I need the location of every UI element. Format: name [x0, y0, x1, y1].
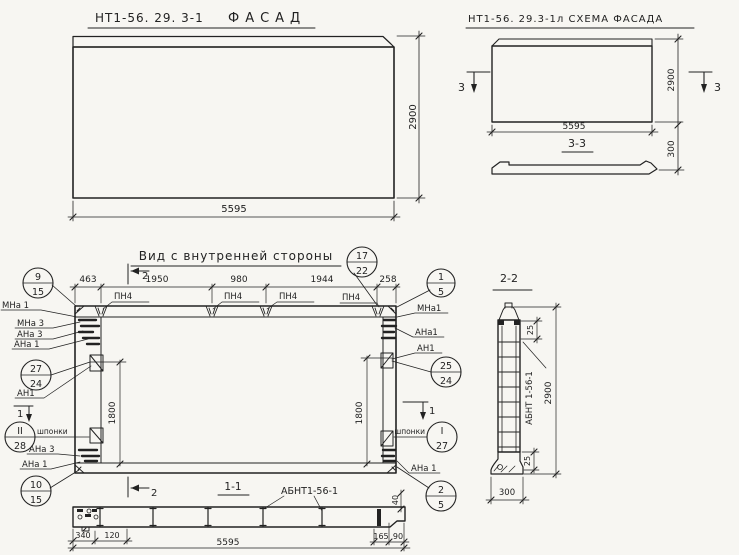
inner-corner-chamfers — [75, 306, 396, 473]
dim-2900-section: 2900 — [544, 381, 554, 404]
schema-section-profile — [492, 161, 657, 174]
inner-title: Вид с внутренней стороны — [139, 249, 333, 263]
label-ana1-left-bottom: АНа 1 — [22, 460, 48, 470]
drawing-sheet: НТ1-56. 29. 3-1 ФАСАД 5595 2900 НТ1-56. … — [0, 0, 739, 555]
schema-marker-left: 3 — [458, 81, 465, 94]
schema-top-flange — [492, 39, 652, 46]
section-marker-1-lines — [14, 402, 428, 415]
anchor-plates-left-bottom — [79, 450, 99, 461]
facade-dim-width: 5595 — [221, 204, 246, 215]
marker-2-top: 2 — [142, 271, 148, 282]
schema-view: НТ1-56. 29.3-1л СХЕМА ФАСАДА 5595 2900 3… — [458, 14, 721, 175]
bar-outline — [73, 507, 405, 527]
facade-dim-ticks — [70, 33, 422, 220]
callout-top: 27 — [30, 364, 42, 375]
anchor-plates-right-top — [382, 320, 396, 338]
label-an1-left: АН1 — [17, 389, 35, 399]
facade-code: НТ1-56. 29. 3-1 — [95, 11, 204, 25]
section-1-1: 1-1 АБНТ1-56-1 340 120 165 90 5595 40 — [68, 481, 410, 551]
rebar-dot-3 — [94, 515, 98, 519]
callout-top: 9 — [35, 272, 41, 283]
label-an1-right: АН1 — [417, 344, 435, 354]
label-ana3-left: АНа 3 — [17, 330, 43, 340]
pn4-label-3: ПН4 — [279, 292, 297, 302]
dim-90: 90 — [393, 532, 403, 541]
dim-1800-left: 1800 — [108, 401, 118, 424]
section-2-2: 2-2 25 25 АБНТ 1-56-1 2900 300 — [486, 272, 561, 504]
callout-10-15: 10 15 — [21, 470, 79, 506]
callout-27-24: 27 24 — [21, 360, 90, 390]
bar-ibeam-marks — [97, 508, 325, 526]
schema-dim-lines — [487, 34, 684, 175]
inner-panel-edges — [75, 317, 396, 463]
callout-leader — [23, 283, 76, 306]
dim-463: 463 — [79, 275, 96, 285]
pn4-label-2: ПН4 — [224, 292, 242, 302]
label-ana1-left: АНа 1 — [14, 340, 40, 350]
schema-section-title: 3-3 — [568, 137, 586, 150]
rebar-dot-2 — [87, 509, 91, 513]
callout-top: II — [17, 426, 23, 437]
callout-bottom: 28 — [14, 441, 26, 452]
bar-end-anchor-fill — [377, 509, 381, 526]
label-ana3-left-bottom: АНа 3 — [29, 445, 55, 455]
top-notches — [95, 306, 384, 316]
callout-top: I — [441, 426, 444, 437]
label-mna3-left: МНа 3 — [17, 319, 44, 329]
dim-5595-bottom: 5595 — [217, 538, 240, 548]
facade-title: ФАСАД — [228, 11, 306, 26]
schema-dim-height: 2900 — [667, 68, 677, 91]
part-label-abnt-vertical: АБНТ 1-56-1 — [525, 371, 535, 425]
callout-top: 25 — [440, 361, 452, 372]
dim-120: 120 — [104, 531, 119, 540]
facade-view: НТ1-56. 29. 3-1 ФАСАД 5595 2900 — [68, 11, 425, 221]
column-foot-hatch — [494, 465, 515, 472]
shponki-left-label: шпонки — [37, 427, 68, 436]
marker-1-left: 1 — [17, 409, 23, 420]
schema-dim-thickness: 300 — [667, 140, 677, 157]
schema-dim-width: 5595 — [563, 122, 586, 132]
schema-marker-right: 3 — [714, 81, 721, 94]
callout-top: 2 — [438, 485, 444, 496]
section-marker-1-arrows — [26, 412, 426, 422]
dim-980: 980 — [230, 275, 247, 285]
inner-panel-outline — [75, 306, 396, 473]
dim-1800-ticks — [117, 355, 370, 467]
label-mna1-right: МНа1 — [417, 304, 441, 314]
callout-top: 1 — [438, 272, 444, 283]
anchor-plates-right-bottom — [382, 450, 395, 461]
column-anchor-squares — [498, 320, 520, 325]
callout-bottom: 24 — [440, 376, 452, 387]
label-ana1-right-bottom: АНа 1 — [411, 464, 437, 474]
dim-1800-right: 1800 — [355, 401, 365, 424]
dim-340: 340 — [75, 531, 90, 540]
dim-165: 165 — [373, 532, 388, 541]
part-label-abnt: АБНТ1-56-1 — [281, 486, 338, 497]
column-cap — [499, 303, 519, 320]
part-label-leaders — [265, 496, 322, 511]
dim-40: 40 — [391, 495, 400, 505]
label-ana1-right: АНа1 — [415, 328, 438, 338]
facade-dim-height: 2900 — [408, 104, 419, 129]
dim-1944: 1944 — [311, 275, 334, 285]
callout-9-15: 9 15 — [23, 268, 76, 306]
drawing-canvas: НТ1-56. 29. 3-1 ФАСАД 5595 2900 НТ1-56. … — [0, 0, 739, 555]
dim-25-bottom: 25 — [523, 456, 532, 466]
callout-I-27: I 27 шпонки — [394, 422, 457, 452]
dim-300: 300 — [499, 488, 515, 498]
callout-1-5: 1 5 — [397, 269, 455, 307]
rebar-dot-1 — [78, 515, 82, 519]
callout-bottom: 5 — [438, 287, 444, 298]
pn4-label-1: ПН4 — [114, 292, 132, 302]
dim-258: 258 — [379, 275, 396, 285]
callout-bottom: 15 — [30, 495, 42, 506]
pn4-label-4: ПН4 — [342, 293, 360, 303]
column-foot-hook — [498, 465, 503, 470]
callout-top: 17 — [356, 251, 368, 262]
callout-25-24: 25 24 — [392, 357, 461, 387]
dim-1800-lines — [90, 356, 392, 466]
facade-dim-lines — [68, 31, 425, 221]
callout-bottom: 22 — [356, 266, 368, 277]
schema-panel-outline — [492, 46, 652, 122]
marker-1-right: 1 — [429, 406, 435, 417]
label-mna1-left: МНа 1 — [2, 301, 29, 311]
callout-bottom: 5 — [438, 500, 444, 511]
schema-title: НТ1-56. 29.3-1л СХЕМА ФАСАДА — [468, 14, 663, 25]
section-2-2-title: 2-2 — [500, 272, 518, 285]
callout-top: 10 — [30, 480, 42, 491]
key-bumps — [90, 353, 393, 446]
facade-panel-outline — [73, 47, 394, 198]
dim-1950: 1950 — [146, 275, 169, 285]
dim-25-top: 25 — [526, 325, 535, 335]
inner-view: Вид с внутренней стороны 463 1950 980 19… — [1, 247, 461, 511]
facade-top-flange — [73, 37, 394, 48]
column-foot — [491, 452, 523, 474]
column-inner-edges — [502, 326, 516, 452]
section-1-1-title: 1-1 — [224, 481, 241, 493]
shponki-right-label: шпонки — [394, 427, 425, 436]
callout-bottom: 27 — [436, 441, 448, 452]
callout-bottom: 15 — [32, 287, 44, 298]
marker-2-bottom: 2 — [151, 488, 157, 499]
